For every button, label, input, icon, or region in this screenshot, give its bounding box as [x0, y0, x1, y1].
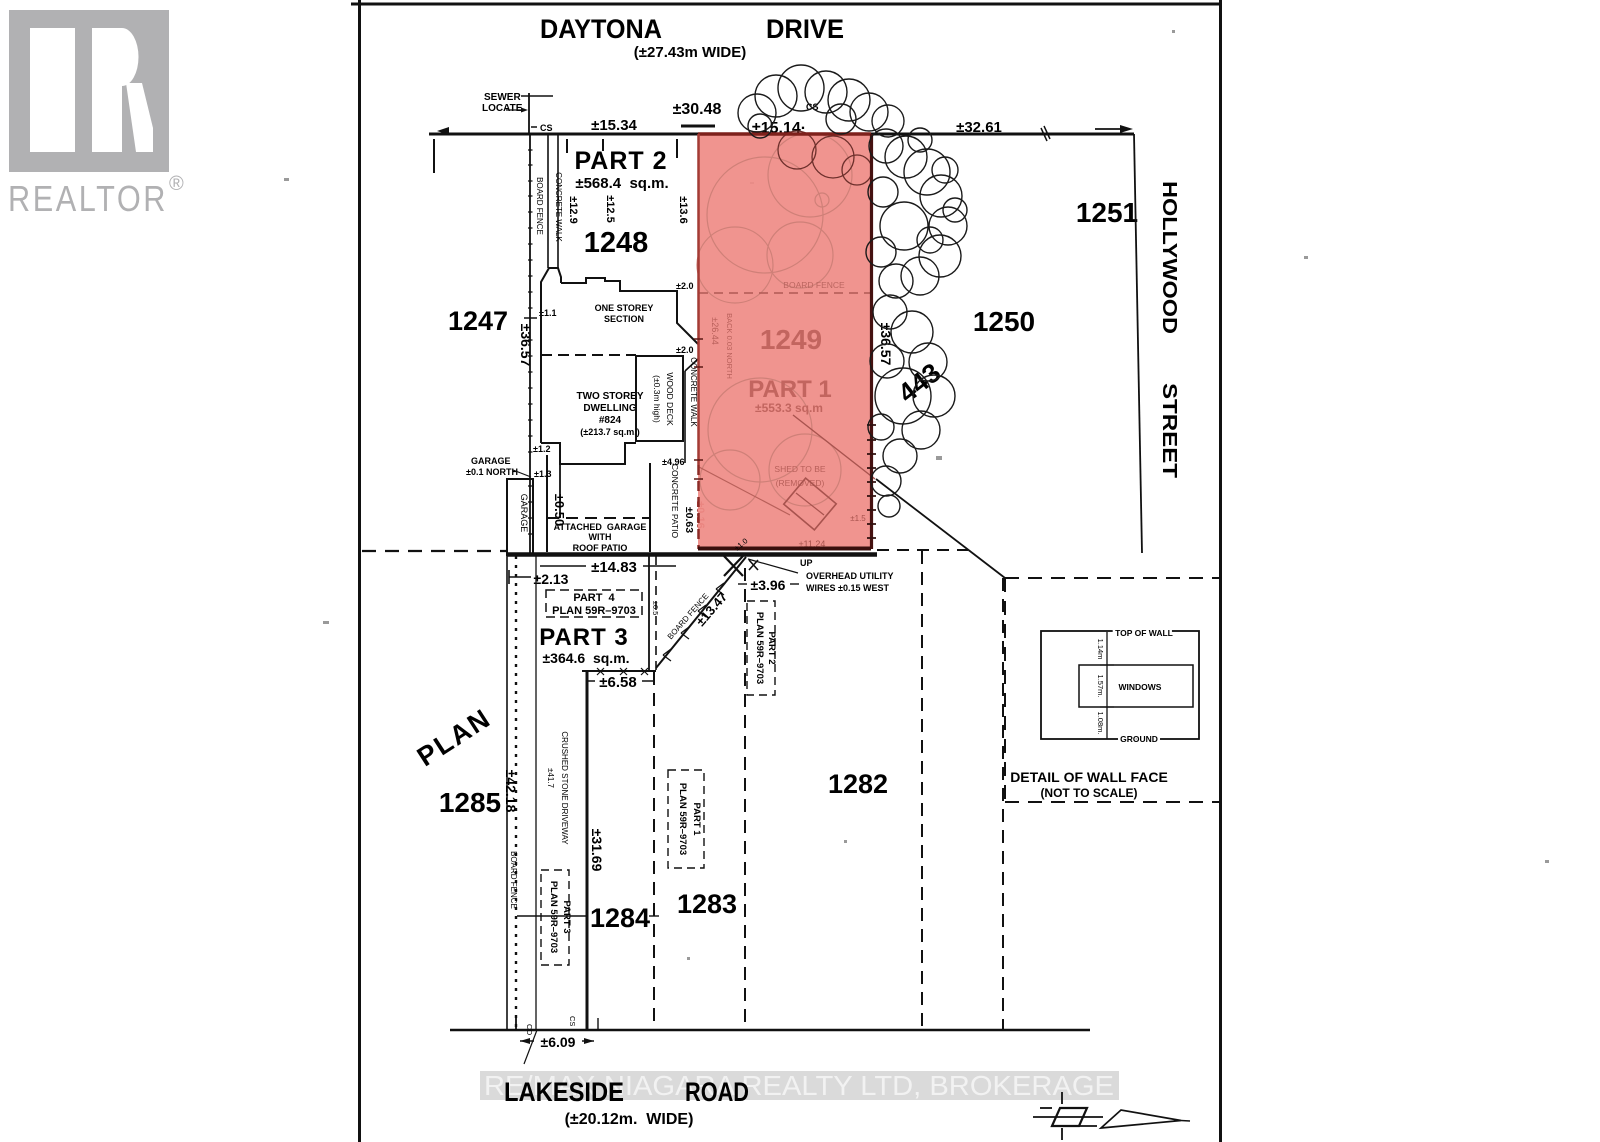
svg-text:±12.9: ±12.9 — [567, 196, 579, 223]
svg-text:±13.6: ±13.6 — [677, 196, 689, 223]
svg-text:GROUND: GROUND — [1120, 734, 1158, 744]
svg-text:CONCRETE PATIO: CONCRETE PATIO — [670, 464, 680, 539]
svg-text:1250: 1250 — [973, 306, 1035, 337]
svg-text:±2.13: ±2.13 — [534, 571, 569, 587]
svg-text:GARAGE: GARAGE — [519, 494, 529, 533]
svg-text:±1.5: ±1.5 — [850, 514, 866, 523]
svg-text:ATTACHED GARAGE: ATTACHED GARAGE — [554, 522, 647, 532]
svg-text:1.57m.: 1.57m. — [1096, 675, 1105, 698]
svg-text:1249: 1249 — [760, 324, 822, 355]
svg-text:BACK 0.03 NORTH: BACK 0.03 NORTH — [725, 313, 734, 379]
svg-text:PART 4: PART 4 — [573, 592, 615, 604]
svg-text:CS: CS — [568, 1016, 577, 1026]
svg-text:±0.1 NORTH: ±0.1 NORTH — [466, 467, 518, 477]
svg-text:1.08m.: 1.08m. — [1096, 712, 1105, 735]
svg-text:SECTION: SECTION — [604, 314, 644, 324]
svg-text:PART 2: PART 2 — [766, 631, 777, 664]
svg-text:1283: 1283 — [677, 889, 737, 919]
svg-text:LOCATE: LOCATE — [482, 103, 523, 114]
svg-text:(±0.3m high): (±0.3m high) — [652, 375, 662, 423]
svg-text:PART 2: PART 2 — [574, 147, 667, 175]
svg-text:±3.96: ±3.96 — [751, 577, 786, 593]
svg-text:DETAIL OF WALL FACE: DETAIL OF WALL FACE — [1010, 769, 1168, 785]
svg-text:PART 1: PART 1 — [748, 376, 832, 403]
svg-text:ROOF PATIO: ROOF PATIO — [573, 543, 628, 553]
svg-text:PART 3: PART 3 — [561, 900, 572, 933]
svg-text:±2.0: ±2.0 — [676, 345, 693, 355]
svg-text:#824: #824 — [599, 415, 622, 426]
svg-text:1247: 1247 — [448, 306, 508, 336]
svg-text:PART 1: PART 1 — [691, 802, 702, 836]
svg-text:WINDOWS: WINDOWS — [1119, 682, 1162, 692]
svg-text:1248: 1248 — [584, 227, 649, 259]
svg-text:±6.5: ±6.5 — [651, 601, 660, 616]
svg-text:±41.7: ±41.7 — [546, 768, 555, 789]
svg-text:PLAN 59R–9703: PLAN 59R–9703 — [548, 881, 559, 953]
svg-text:UP: UP — [800, 558, 813, 568]
svg-text:DRIVE: DRIVE — [766, 14, 844, 44]
svg-text:BOARD FENCE: BOARD FENCE — [509, 851, 518, 909]
svg-text:DWELLING: DWELLING — [583, 403, 637, 414]
svg-text:®: ® — [169, 173, 184, 195]
svg-text:PART 3: PART 3 — [539, 624, 629, 651]
svg-text:SEWER: SEWER — [484, 92, 521, 103]
svg-text:CONCRETE WALK: CONCRETE WALK — [554, 172, 563, 242]
svg-text:±1.2: ±1.2 — [533, 444, 550, 454]
svg-text:PLAN 59R–9703: PLAN 59R–9703 — [754, 612, 765, 684]
svg-text:±553.3 sq.m: ±553.3 sq.m — [755, 401, 823, 415]
svg-text:DAYTONA: DAYTONA — [540, 14, 662, 44]
svg-text:ROAD: ROAD — [685, 1077, 749, 1107]
svg-text:HOLLYWOOD: HOLLYWOOD — [1158, 181, 1180, 334]
svg-text:PLAN 59R–9703: PLAN 59R–9703 — [677, 783, 688, 855]
svg-text:TOP OF WALL: TOP OF WALL — [1115, 628, 1173, 638]
svg-text:(REMOVED): (REMOVED) — [776, 478, 825, 488]
svg-text:±1.3: ±1.3 — [534, 469, 551, 479]
svg-text:±31.69: ±31.69 — [589, 829, 605, 872]
svg-text:(NOT TO SCALE): (NOT TO SCALE) — [1040, 786, 1137, 800]
svg-text:±6.58: ±6.58 — [599, 674, 636, 691]
svg-text:±0.63: ±0.63 — [683, 507, 695, 533]
svg-text:(±27.43m WIDE): (±27.43m WIDE) — [634, 44, 746, 61]
svg-text:TWO STOREY: TWO STOREY — [576, 391, 643, 402]
svg-text:±36.57: ±36.57 — [518, 324, 534, 367]
svg-text:BOARD FENCE: BOARD FENCE — [535, 177, 544, 235]
svg-text:CO: CO — [525, 1024, 534, 1035]
svg-text:WITH: WITH — [589, 532, 612, 542]
svg-text:(±20.12m. WIDE): (±20.12m. WIDE) — [565, 1111, 694, 1128]
svg-text:±15.34: ±15.34 — [591, 117, 637, 134]
svg-text:1.14m: 1.14m — [1096, 639, 1105, 660]
svg-text:BOARD FENCE: BOARD FENCE — [783, 280, 845, 290]
svg-text:±14.83: ±14.83 — [591, 559, 637, 576]
svg-text:CS: CS — [540, 123, 553, 133]
svg-text:±2.0: ±2.0 — [676, 281, 693, 291]
svg-text:CRUSHED STONE DRIVEWAY: CRUSHED STONE DRIVEWAY — [560, 731, 569, 845]
svg-text:±568.4 sq.m.: ±568.4 sq.m. — [575, 175, 668, 192]
svg-text:±32.61: ±32.61 — [956, 119, 1002, 136]
svg-text:LAKESIDE: LAKESIDE — [504, 1077, 624, 1107]
svg-text:STREET: STREET — [1158, 383, 1180, 478]
svg-text:GARAGE: GARAGE — [471, 456, 511, 466]
svg-text:±42.18: ±42.18 — [503, 770, 519, 813]
svg-text:1284: 1284 — [590, 903, 650, 933]
svg-text:PLAN 59R–9703: PLAN 59R–9703 — [552, 605, 636, 617]
svg-text:±364.6 sq.m.: ±364.6 sq.m. — [542, 650, 629, 666]
svg-text:REALTOR: REALTOR — [8, 178, 168, 219]
svg-text:±6.09: ±6.09 — [541, 1034, 576, 1050]
svg-text:WOOD DECK: WOOD DECK — [665, 372, 675, 426]
svg-text:±30.48: ±30.48 — [673, 101, 722, 118]
svg-text:OVERHEAD UTILITY: OVERHEAD UTILITY — [806, 571, 894, 581]
svg-text:(±213.7 sq.m.): (±213.7 sq.m.) — [580, 427, 639, 437]
svg-text:1251: 1251 — [1076, 197, 1138, 228]
svg-text:1282: 1282 — [828, 769, 888, 799]
svg-text:±12.5: ±12.5 — [604, 195, 616, 222]
svg-text:SHED TO BE: SHED TO BE — [774, 464, 826, 474]
svg-text:±26.44: ±26.44 — [710, 317, 720, 344]
svg-text:1285: 1285 — [439, 787, 501, 818]
svg-text:WIRES ±0.15 WEST: WIRES ±0.15 WEST — [806, 583, 889, 593]
svg-text:ONE STOREY: ONE STOREY — [595, 303, 654, 313]
svg-text:±4.96: ±4.96 — [662, 457, 684, 467]
